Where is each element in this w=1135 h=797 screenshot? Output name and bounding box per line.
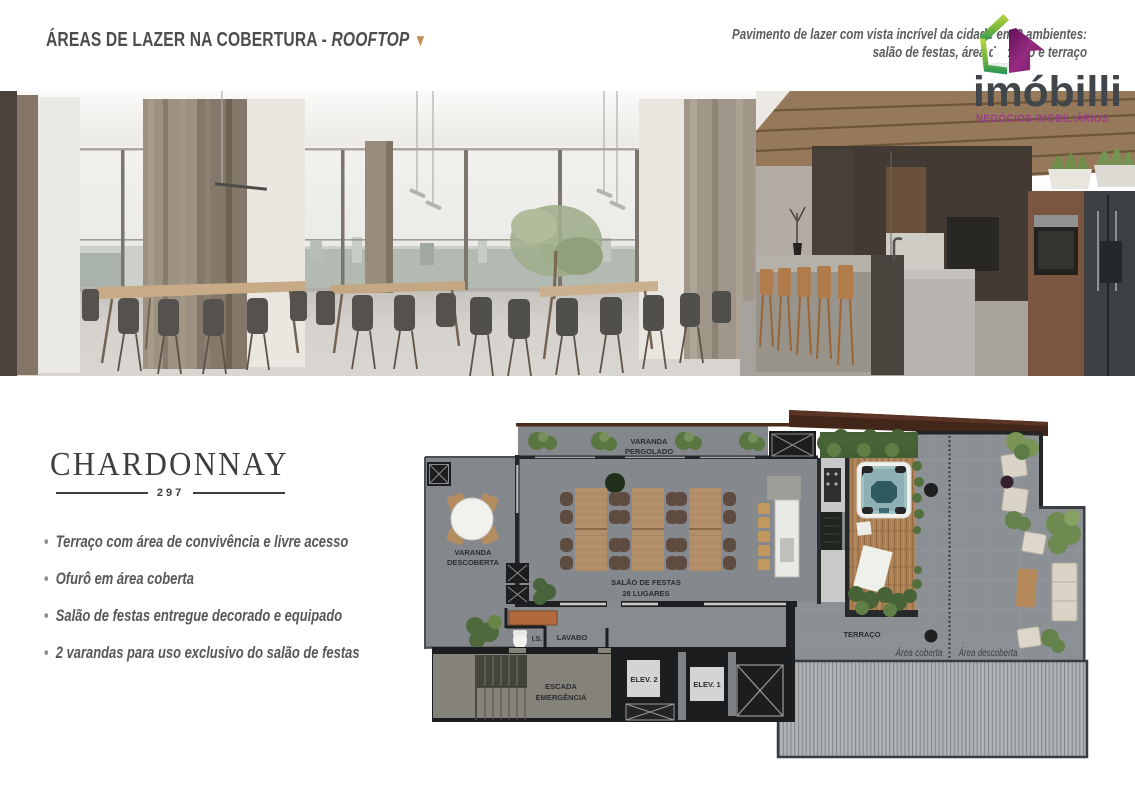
svg-text:ELEV. 1: ELEV. 1 — [693, 680, 720, 689]
svg-text:28 LUGARES: 28 LUGARES — [622, 589, 669, 598]
svg-text:DESCOBERTA: DESCOBERTA — [447, 558, 500, 567]
svg-text:Área descoberta: Área descoberta — [958, 646, 1018, 659]
svg-text:EMERGÊNCIA: EMERGÊNCIA — [536, 693, 587, 702]
svg-text:I.S.: I.S. — [532, 636, 543, 643]
svg-text:VARANDA: VARANDA — [631, 437, 669, 446]
svg-text:SALÃO DE FESTAS: SALÃO DE FESTAS — [611, 578, 681, 587]
svg-text:Área coberta: Área coberta — [895, 646, 943, 659]
svg-text:LAVABO: LAVABO — [557, 633, 588, 642]
svg-text:VARANDA: VARANDA — [455, 548, 493, 557]
svg-text:PERGOLADO: PERGOLADO — [625, 447, 674, 456]
svg-text:ESCADA: ESCADA — [545, 682, 577, 691]
svg-text:ELEV. 2: ELEV. 2 — [630, 675, 657, 684]
svg-text:TERRAÇO: TERRAÇO — [843, 630, 880, 639]
